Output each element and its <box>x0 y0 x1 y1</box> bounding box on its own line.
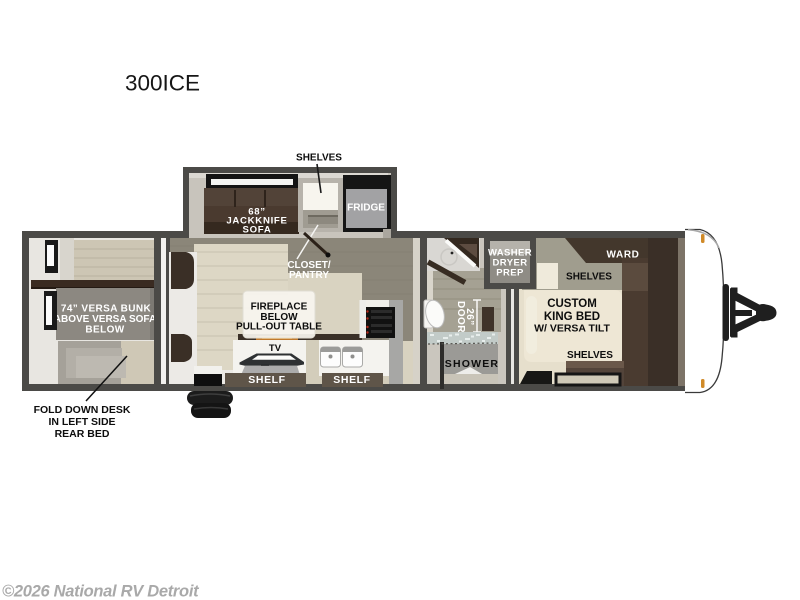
svg-text:TV: TV <box>269 343 282 354</box>
svg-text:SHOWER: SHOWER <box>445 358 499 370</box>
svg-text:CUSTOM: CUSTOM <box>547 298 597 310</box>
svg-text:BELOW: BELOW <box>85 325 124 336</box>
svg-text:300ICE: 300ICE <box>125 71 200 96</box>
svg-text:SOFA: SOFA <box>243 225 272 236</box>
svg-text:ABOVE VERSA SOFA: ABOVE VERSA SOFA <box>54 314 156 325</box>
svg-text:W/ VERSA TILT: W/ VERSA TILT <box>534 323 610 335</box>
svg-text:SHELVES: SHELVES <box>567 350 613 361</box>
svg-text:SHELF: SHELF <box>248 374 285 386</box>
svg-text:KING BED: KING BED <box>544 311 600 323</box>
svg-text:SHELF: SHELF <box>333 374 370 386</box>
svg-text:SHELVES: SHELVES <box>296 153 342 164</box>
svg-text:IN LEFT SIDE: IN LEFT SIDE <box>48 416 115 428</box>
svg-text:FOLD DOWN DESK: FOLD DOWN DESK <box>34 404 131 416</box>
svg-text:PREP: PREP <box>496 268 524 279</box>
svg-text:FIREPLACE: FIREPLACE <box>251 302 308 313</box>
svg-text:REAR BED: REAR BED <box>55 428 110 440</box>
svg-text:©2026 National RV Detroit: ©2026 National RV Detroit <box>2 583 200 600</box>
svg-text:PANTRY: PANTRY <box>289 270 329 281</box>
svg-text:PULL-OUT TABLE: PULL-OUT TABLE <box>236 322 322 333</box>
svg-text:26”: 26” <box>464 308 475 326</box>
svg-text:FRIDGE: FRIDGE <box>347 203 385 214</box>
svg-text:74” VERSA BUNK: 74” VERSA BUNK <box>61 304 152 315</box>
svg-text:SHELVES: SHELVES <box>566 272 612 283</box>
